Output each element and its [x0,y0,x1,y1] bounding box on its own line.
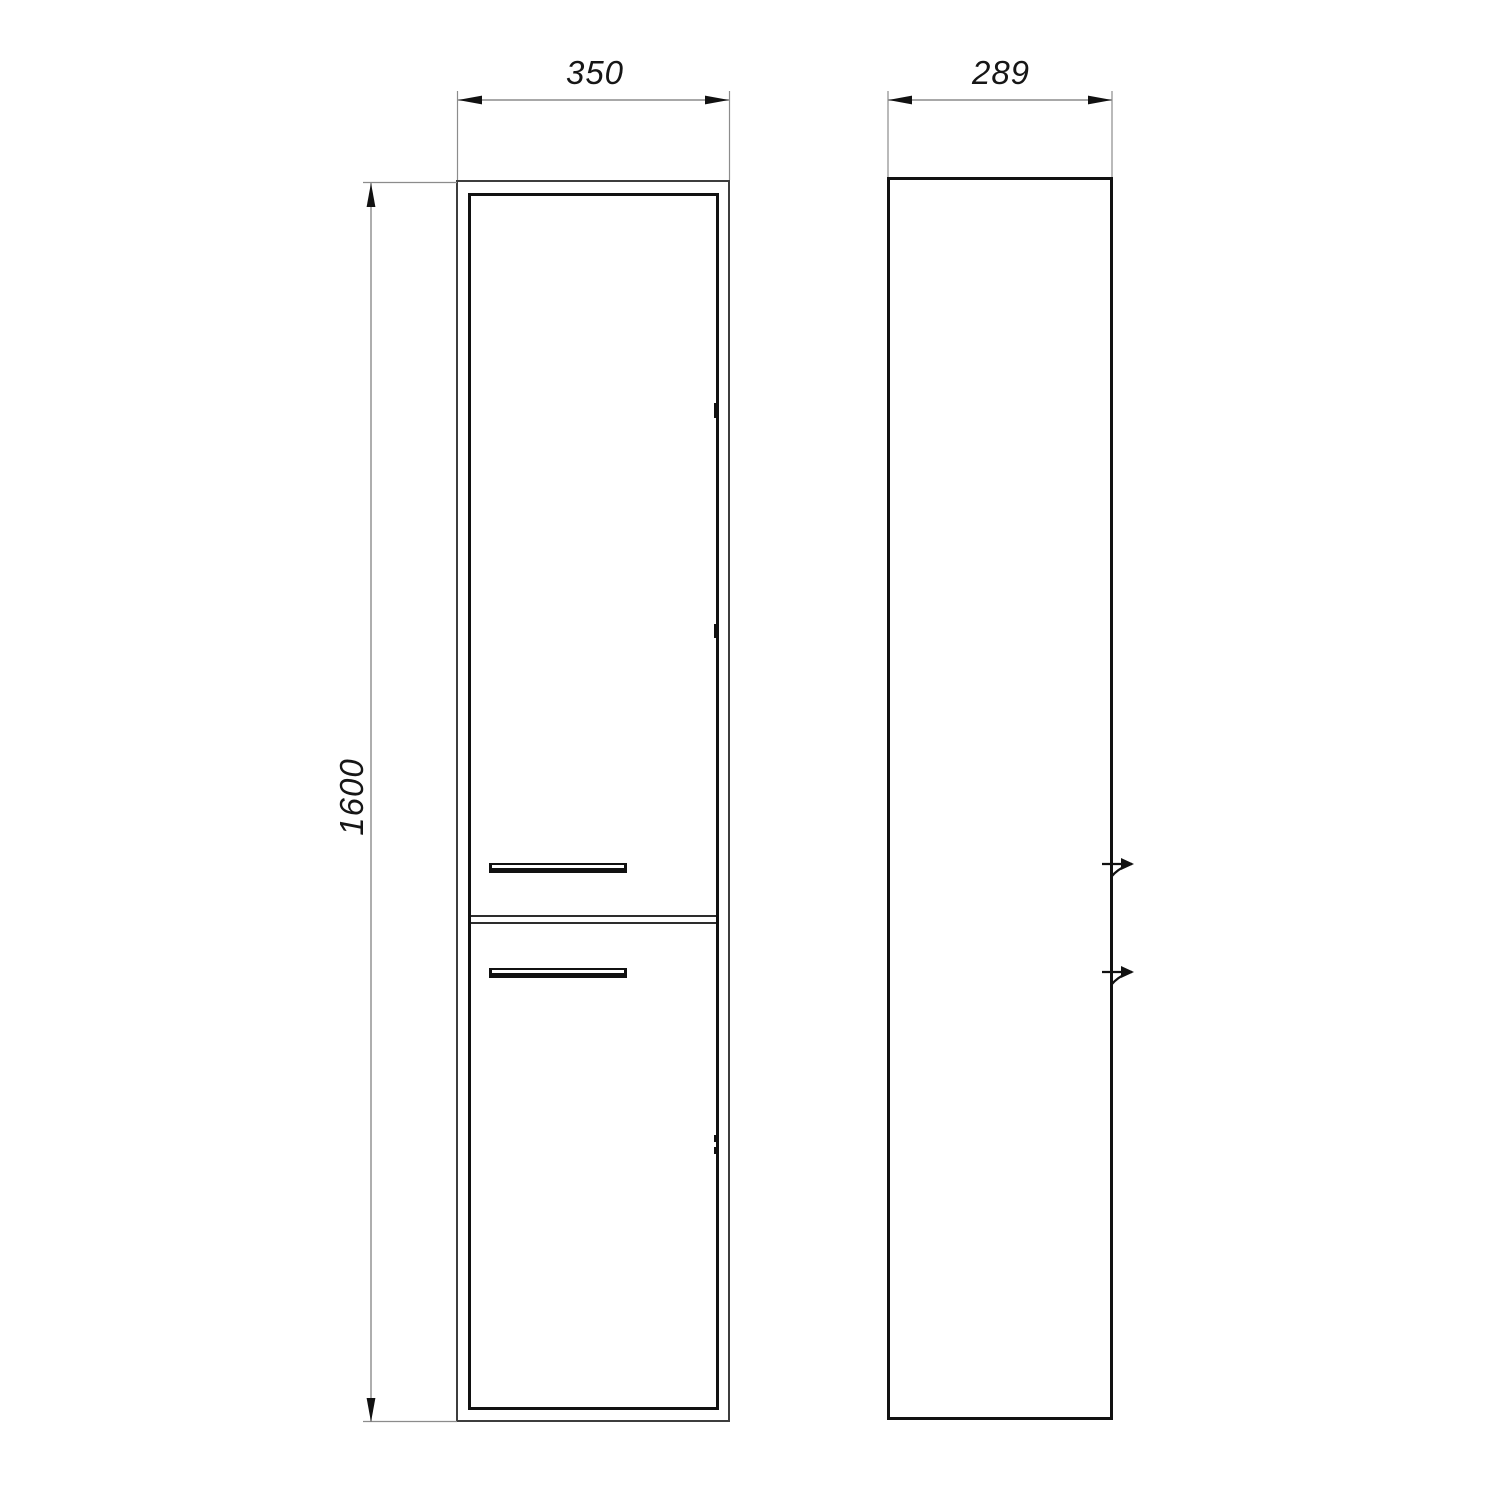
lower-door-handle [489,968,627,978]
hinge-mark [714,1135,719,1142]
width-dimension-label: 350 [545,56,645,90]
door-panel-front [468,193,719,1410]
hinge-mark [714,624,719,638]
dimension-width-lines [448,86,740,186]
dimension-depth-lines [878,86,1123,186]
upper-door-handle [489,863,627,873]
hinge-mark [714,1147,719,1154]
drawing-canvas: 350 289 1600 [0,0,1500,1500]
door-divider-gap [471,915,716,924]
height-dimension-label: 1600 [335,742,369,852]
dimension-height-lines [356,174,466,1430]
handle-highlight [492,865,624,868]
depth-dimension-label: 289 [951,56,1051,90]
wall-bracket-icon [1099,851,1139,881]
handle-highlight [492,970,624,973]
hinge-mark [714,403,719,418]
wall-bracket-icon [1099,959,1139,989]
cabinet-outline-side [887,177,1113,1420]
